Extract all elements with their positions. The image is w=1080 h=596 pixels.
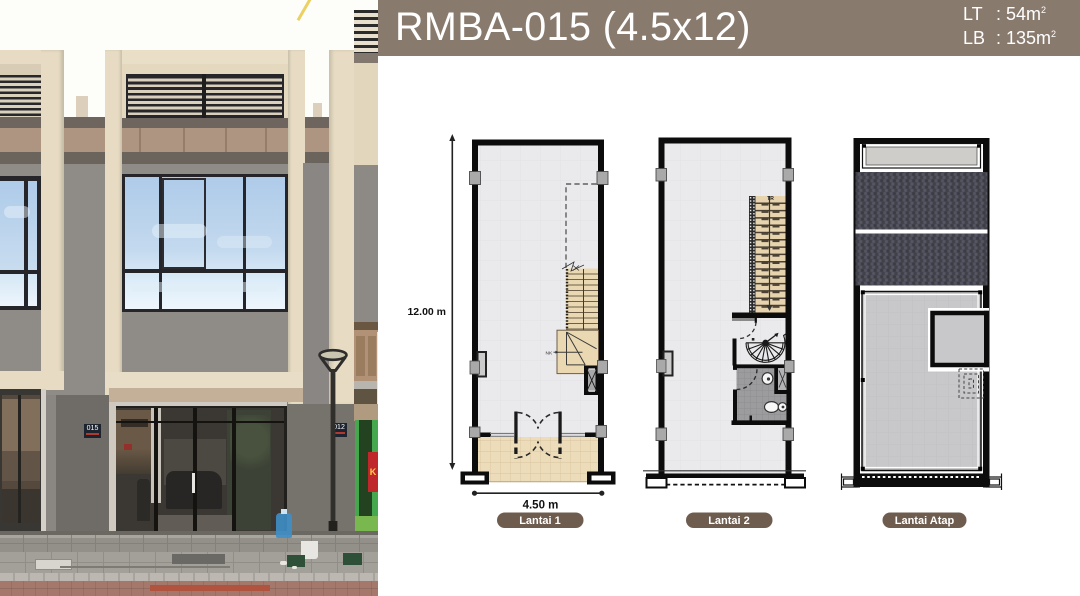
svg-text:Lantai 2: Lantai 2	[708, 515, 750, 527]
svg-text:Lantai 1: Lantai 1	[519, 515, 561, 527]
svg-text:Lantai Atap: Lantai Atap	[895, 515, 955, 527]
svg-text:12.00 m: 12.00 m	[407, 306, 446, 318]
svg-text:NK: NK	[546, 351, 553, 357]
svg-text:TR: TR	[767, 196, 774, 202]
svg-text:4.50 m: 4.50 m	[523, 500, 559, 512]
